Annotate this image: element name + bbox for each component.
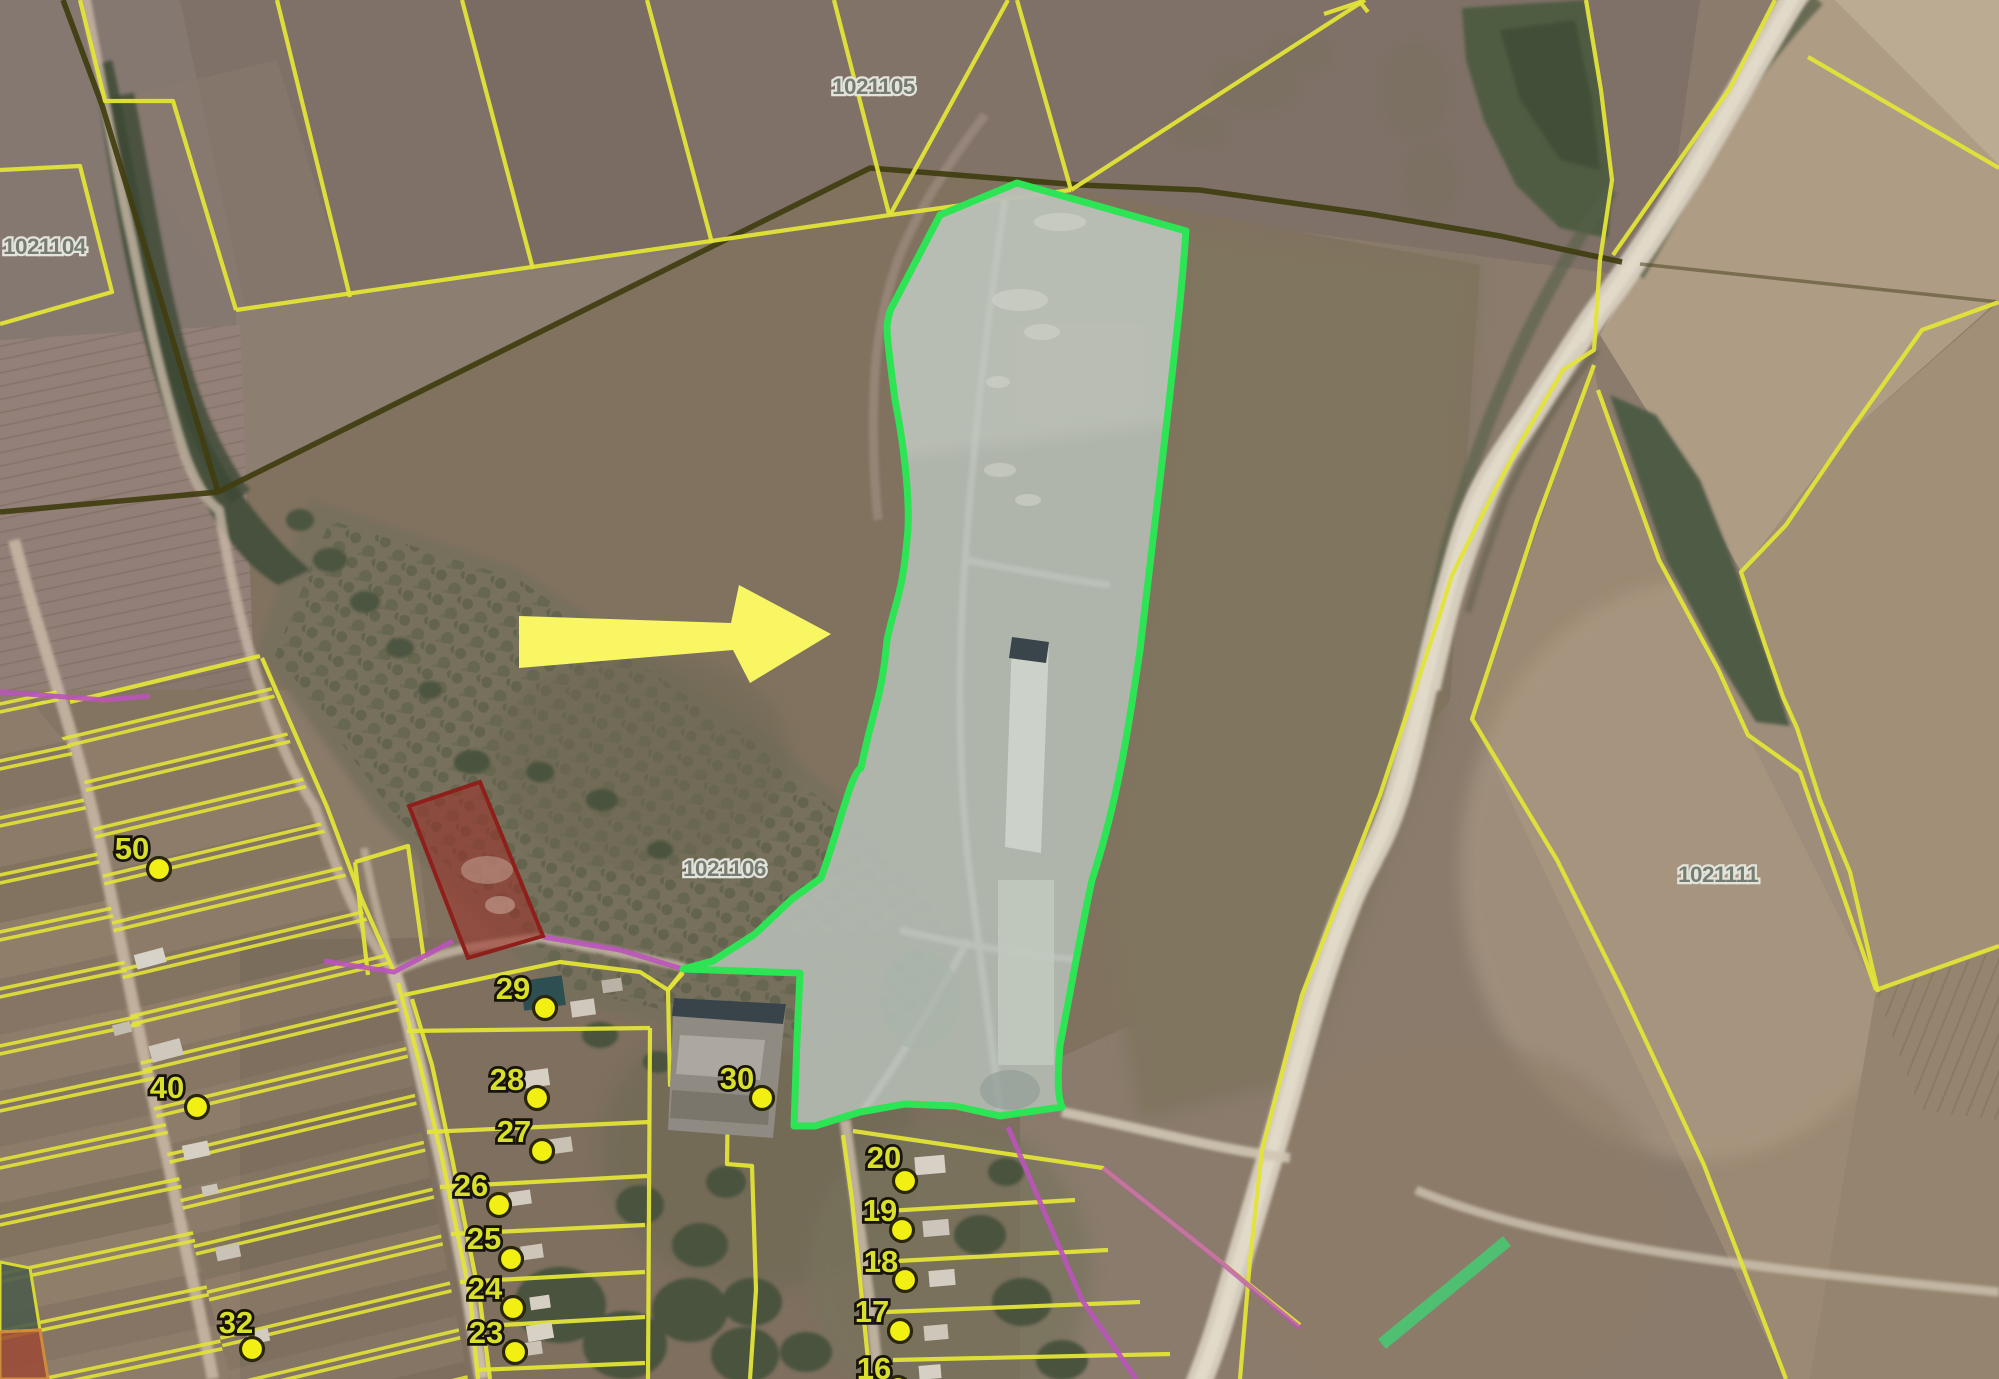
- svg-text:30: 30: [720, 1061, 754, 1096]
- svg-text:32: 32: [219, 1305, 253, 1340]
- svg-text:28: 28: [490, 1062, 524, 1097]
- svg-text:50: 50: [115, 831, 149, 866]
- svg-text:24: 24: [468, 1271, 503, 1306]
- svg-text:1021111: 1021111: [1678, 862, 1758, 887]
- svg-text:26: 26: [454, 1168, 488, 1203]
- svg-text:1021104: 1021104: [3, 234, 87, 259]
- svg-text:16: 16: [857, 1351, 891, 1379]
- svg-text:23: 23: [469, 1315, 503, 1350]
- svg-text:20: 20: [867, 1140, 901, 1175]
- svg-text:29: 29: [496, 971, 530, 1006]
- svg-text:1021106: 1021106: [683, 856, 766, 881]
- svg-text:40: 40: [150, 1070, 184, 1105]
- svg-text:25: 25: [467, 1221, 501, 1256]
- svg-text:17: 17: [855, 1294, 889, 1329]
- svg-text:27: 27: [497, 1114, 531, 1149]
- svg-text:18: 18: [864, 1244, 898, 1279]
- svg-text:1021105: 1021105: [832, 74, 915, 99]
